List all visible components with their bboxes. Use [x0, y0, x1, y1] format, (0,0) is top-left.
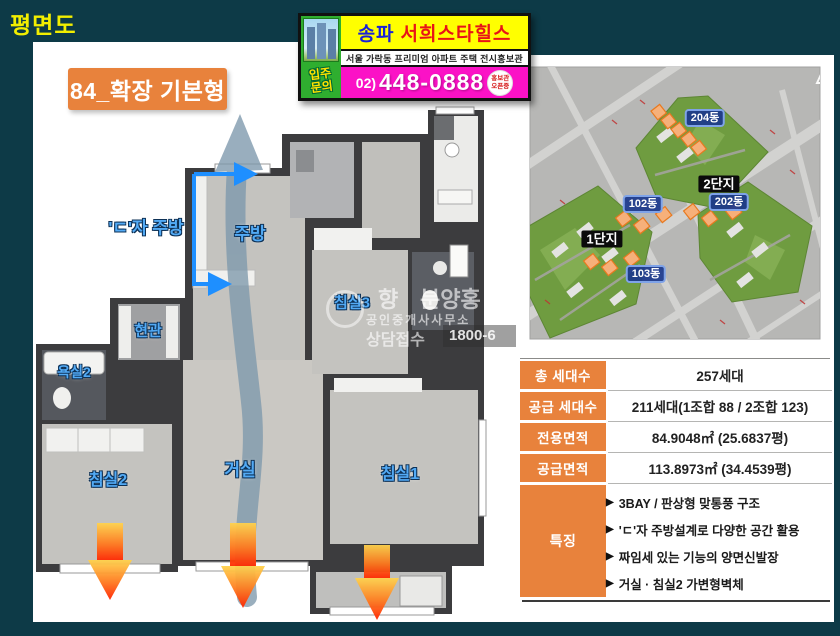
sitemap-drawing: [516, 55, 834, 345]
watermark-logo: [326, 290, 364, 328]
open-badge-line2: 오픈중: [491, 83, 509, 90]
map-badge-202: 202동: [709, 193, 749, 211]
table-label-features: 특징: [520, 485, 606, 597]
room-label-bedroom1: 침실1: [381, 460, 419, 484]
room-label-bathroom2: 욕실2: [57, 362, 91, 382]
feature-item: ▶ 거실 · 침실2 가변형벽체: [606, 570, 832, 597]
feature-item: ▶ 3BAY / 판상형 맞통풍 구조: [606, 489, 832, 516]
map-badge-complex1: 1단지: [581, 231, 622, 248]
row-divider: [608, 421, 832, 422]
sitemap: 204동 2단지 202동 102동 1단지 103동: [516, 55, 834, 345]
map-badge-204: 204동: [685, 109, 725, 127]
map-badge-103: 103동: [626, 265, 666, 283]
table-value-supply-area: 113.8973㎡ (34.4539평): [610, 454, 830, 482]
brand-name: 서희스타힐스: [401, 19, 512, 46]
move-in-inquiry: 입주 문의: [299, 62, 343, 101]
features-list: ▶ 3BAY / 판상형 맞통풍 구조 ▶ 'ㄷ'자 주방설계로 다양한 공간 …: [606, 489, 832, 597]
banner-left: 입주 문의: [301, 16, 341, 98]
feature-item: ▶ 'ㄷ'자 주방설계로 다양한 공간 활용: [606, 516, 832, 543]
table-top-line: [520, 358, 830, 359]
map-badge-complex2: 2단지: [698, 176, 739, 193]
apartment-photo: [303, 18, 339, 62]
floorplan-panel: 84_확장 기본형 'ㄷ'자 주방 주방 현관 욕실2 침실3 침실2 거실 침…: [33, 42, 516, 622]
table-label-exclusive-area: 전용면적: [520, 423, 606, 451]
banner-phone-row: 02) 448-0888 홍보관 오픈중: [341, 67, 528, 98]
brand-prefix: 송파: [358, 19, 395, 46]
table-value-exclusive-area: 84.9048㎡ (25.6837평): [610, 423, 830, 451]
inquiry-line2: 문의: [310, 80, 333, 95]
feature-text: 거실 · 침실2 가변형벽체: [619, 574, 744, 593]
flyer-page: 평면도: [0, 0, 840, 636]
promo-banner: 입주 문의 송파 서희스타힐스 서울 가락동 프리미엄 아파트 주택 전시홍보관…: [298, 13, 531, 101]
room-label-bedroom2: 침실2: [89, 466, 127, 490]
open-badge: 홍보관 오픈중: [487, 70, 513, 96]
open-badge-line1: 홍보관: [491, 75, 509, 82]
row-divider: [608, 452, 832, 453]
table-bottom-line: [522, 600, 830, 602]
watermark-contact-number: 1800-6: [443, 325, 516, 347]
room-label-living: 거실: [224, 456, 255, 481]
table-label-total: 총 세대수: [520, 361, 606, 389]
phone-prefix: 02): [356, 75, 376, 91]
map-badge-102: 102동: [623, 195, 663, 213]
table-value-supply: 211세대(1조합 88 / 2조합 123): [610, 392, 830, 420]
bullet-icon: ▶: [606, 551, 614, 562]
bullet-icon: ▶: [606, 578, 614, 589]
room-label-kitchen-note: 'ㄷ'자 주방: [108, 214, 183, 239]
banner-subtitle: 서울 가락동 프리미엄 아파트 주택 전시홍보관: [341, 51, 528, 67]
feature-text: 짜임세 있는 기능의 양면신발장: [619, 547, 779, 566]
row-divider: [608, 390, 832, 391]
unit-type-label: 84_확장 기본형: [68, 68, 227, 110]
banner-title: 송파 서희스타힐스: [341, 16, 528, 51]
feature-text: 3BAY / 판상형 맞통풍 구조: [619, 493, 760, 512]
room-label-kitchen: 주방: [234, 220, 265, 245]
phone-number: 448-0888: [379, 69, 484, 96]
table-label-supply-area: 공급면적: [520, 454, 606, 482]
row-divider: [608, 483, 832, 484]
table-label-supply: 공급 세대수: [520, 392, 606, 420]
feature-item: ▶ 짜임세 있는 기능의 양면신발장: [606, 543, 832, 570]
room-label-entrance: 현관: [134, 320, 162, 341]
bullet-icon: ▶: [606, 524, 614, 535]
bullet-icon: ▶: [606, 497, 614, 508]
banner-right: 송파 서희스타힐스 서울 가락동 프리미엄 아파트 주택 전시홍보관 02) 4…: [341, 16, 528, 98]
feature-text: 'ㄷ'자 주방설계로 다양한 공간 활용: [619, 520, 800, 539]
table-value-total: 257세대: [610, 361, 830, 389]
page-title: 평면도: [10, 6, 76, 40]
